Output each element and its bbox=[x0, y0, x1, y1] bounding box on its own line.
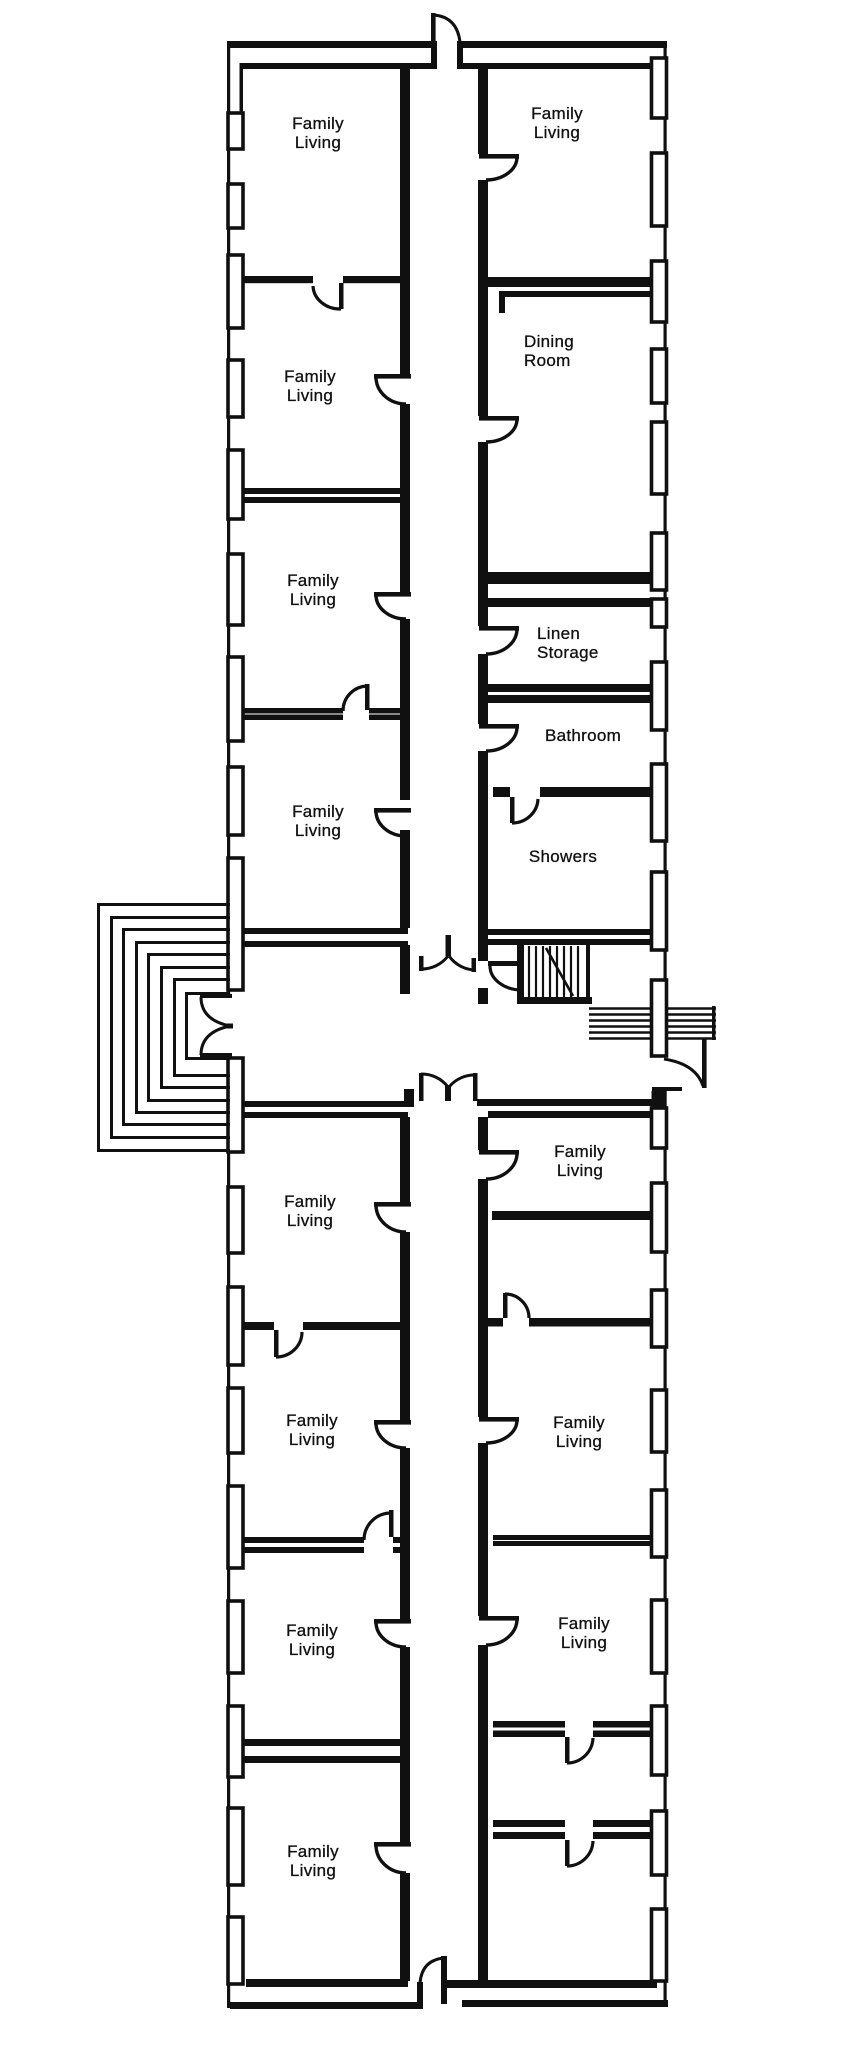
svg-text:Family: Family bbox=[284, 367, 336, 386]
svg-text:Showers: Showers bbox=[529, 847, 597, 866]
svg-text:Living: Living bbox=[295, 133, 341, 152]
svg-text:Living: Living bbox=[287, 1211, 333, 1230]
svg-text:Family: Family bbox=[558, 1614, 610, 1633]
svg-text:Family: Family bbox=[553, 1413, 605, 1432]
svg-text:Family: Family bbox=[531, 104, 583, 123]
svg-text:Dining: Dining bbox=[524, 332, 574, 351]
svg-text:Living: Living bbox=[561, 1633, 607, 1652]
svg-text:Bathroom: Bathroom bbox=[545, 726, 621, 745]
svg-text:Family: Family bbox=[286, 1621, 338, 1640]
svg-text:Family: Family bbox=[287, 1842, 339, 1861]
svg-text:Living: Living bbox=[295, 821, 341, 840]
svg-text:Living: Living bbox=[534, 123, 580, 142]
svg-text:Family: Family bbox=[554, 1142, 606, 1161]
svg-text:Linen: Linen bbox=[537, 624, 580, 643]
svg-text:Living: Living bbox=[557, 1161, 603, 1180]
svg-text:Storage: Storage bbox=[537, 643, 599, 662]
svg-text:Living: Living bbox=[290, 1861, 336, 1880]
svg-text:Living: Living bbox=[289, 1640, 335, 1659]
svg-text:Living: Living bbox=[289, 1430, 335, 1449]
svg-text:Living: Living bbox=[290, 590, 336, 609]
svg-text:Family: Family bbox=[292, 114, 344, 133]
svg-text:Family: Family bbox=[292, 802, 344, 821]
svg-text:Living: Living bbox=[556, 1432, 602, 1451]
svg-text:Room: Room bbox=[524, 351, 571, 370]
svg-text:Family: Family bbox=[286, 1411, 338, 1430]
svg-text:Family: Family bbox=[287, 571, 339, 590]
svg-text:Living: Living bbox=[287, 386, 333, 405]
svg-text:Family: Family bbox=[284, 1192, 336, 1211]
